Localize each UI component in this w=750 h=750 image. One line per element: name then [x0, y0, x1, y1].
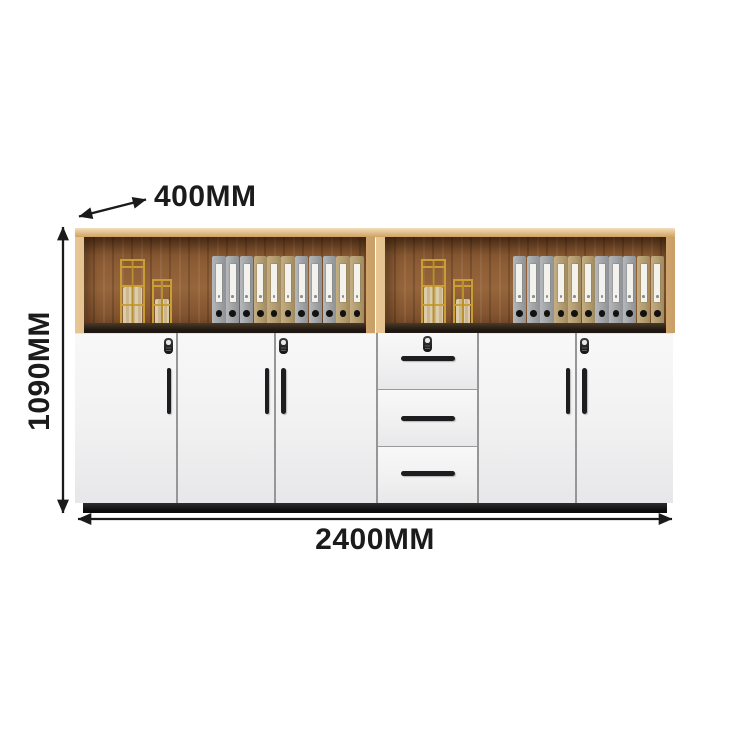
lower-cabinet-section	[75, 333, 673, 503]
binder-gray	[527, 256, 540, 323]
binder-gray	[295, 256, 308, 323]
door-handle	[582, 368, 587, 414]
binder-tan	[637, 256, 650, 323]
binder-gray	[226, 256, 239, 323]
binder-gray	[540, 256, 553, 323]
shelf-interior	[385, 237, 667, 323]
cabinet-door-4	[479, 333, 575, 503]
shelf-interior	[84, 237, 366, 323]
upper-open-shelf-section	[75, 237, 675, 333]
furniture-dimension-diagram: 400MM 1090MM 2400MM	[0, 0, 750, 750]
door-handle	[265, 368, 270, 414]
basket-wires	[453, 281, 473, 323]
depth-dimension-arrow	[79, 200, 146, 217]
cabinet	[75, 228, 675, 503]
wire-basket-tall	[120, 259, 145, 323]
binder-tan	[267, 256, 280, 323]
binder-gray	[212, 256, 225, 323]
shelf-compartment-right	[376, 237, 676, 333]
basket-wires	[421, 261, 446, 323]
drawer-handle	[401, 471, 455, 476]
shelf-edge	[84, 323, 366, 333]
binder-tan	[568, 256, 581, 323]
binder-gray	[240, 256, 253, 323]
cabinet-door-1	[75, 333, 176, 503]
wire-basket-short	[152, 279, 172, 323]
binder-tan	[281, 256, 294, 323]
cabinet-top-panel	[75, 228, 675, 237]
basket-wires	[152, 281, 172, 323]
door-handle	[566, 368, 571, 414]
drawer-handle	[401, 416, 455, 421]
drawer-3	[378, 447, 477, 503]
plinth-base	[83, 503, 667, 513]
drawer-1	[378, 333, 477, 389]
door-handle	[281, 368, 286, 414]
drawer-stack	[378, 333, 477, 503]
lock-icon	[423, 336, 432, 352]
binder-gray	[595, 256, 608, 323]
wire-basket-tall	[421, 259, 446, 323]
binder-tan	[254, 256, 267, 323]
drawer-handle	[401, 356, 455, 361]
lock-icon	[580, 338, 589, 354]
wire-basket-short	[453, 279, 473, 323]
binder-gray	[623, 256, 636, 323]
basket-wires	[120, 261, 145, 323]
binder-tan	[582, 256, 595, 323]
drawer-2	[378, 390, 477, 446]
cabinet-door-5	[577, 333, 673, 503]
binder-row	[212, 256, 364, 323]
lock-icon	[164, 338, 173, 354]
binder-tan	[350, 256, 363, 323]
binder-gray	[323, 256, 336, 323]
cabinet-door-2	[178, 333, 274, 503]
width-dimension-label: 2400MM	[275, 523, 475, 557]
lock-icon	[279, 338, 288, 354]
binder-gray	[309, 256, 322, 323]
height-dimension-label: 1090MM	[23, 286, 57, 456]
binder-tan	[651, 256, 664, 323]
depth-dimension-label: 400MM	[154, 180, 257, 214]
binder-tan	[554, 256, 567, 323]
shelf-edge	[385, 323, 667, 333]
binder-gray	[609, 256, 622, 323]
shelf-compartment-left	[75, 237, 375, 333]
cabinet-door-3	[276, 333, 376, 503]
binder-row	[512, 256, 664, 323]
binder-tan	[336, 256, 349, 323]
binder-gray	[513, 256, 526, 323]
door-handle	[167, 368, 172, 414]
